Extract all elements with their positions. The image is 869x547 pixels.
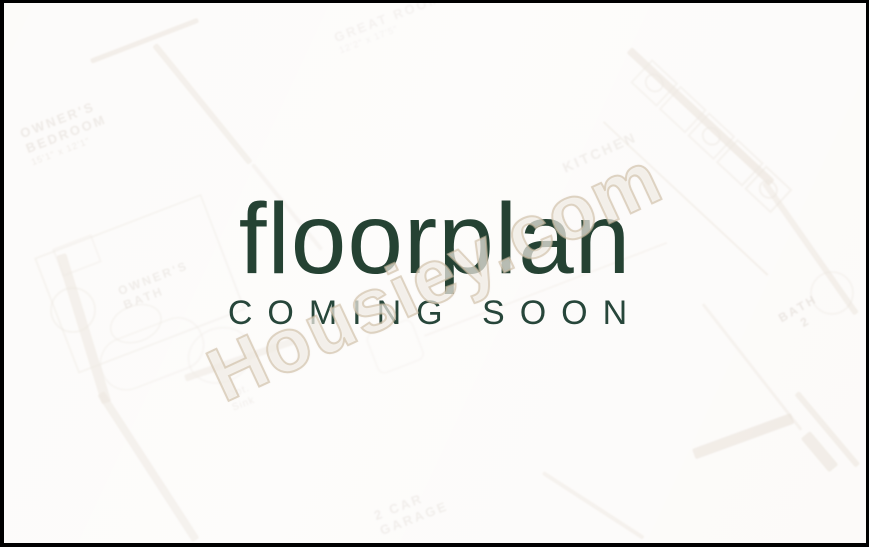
floorplan-placeholder-canvas: GREAT ROOM 12'2" x 17'5" OWNER'S BEDROOM… — [4, 3, 866, 543]
placeholder-image: { "window": { "frame_color": "#000000", … — [0, 0, 869, 547]
